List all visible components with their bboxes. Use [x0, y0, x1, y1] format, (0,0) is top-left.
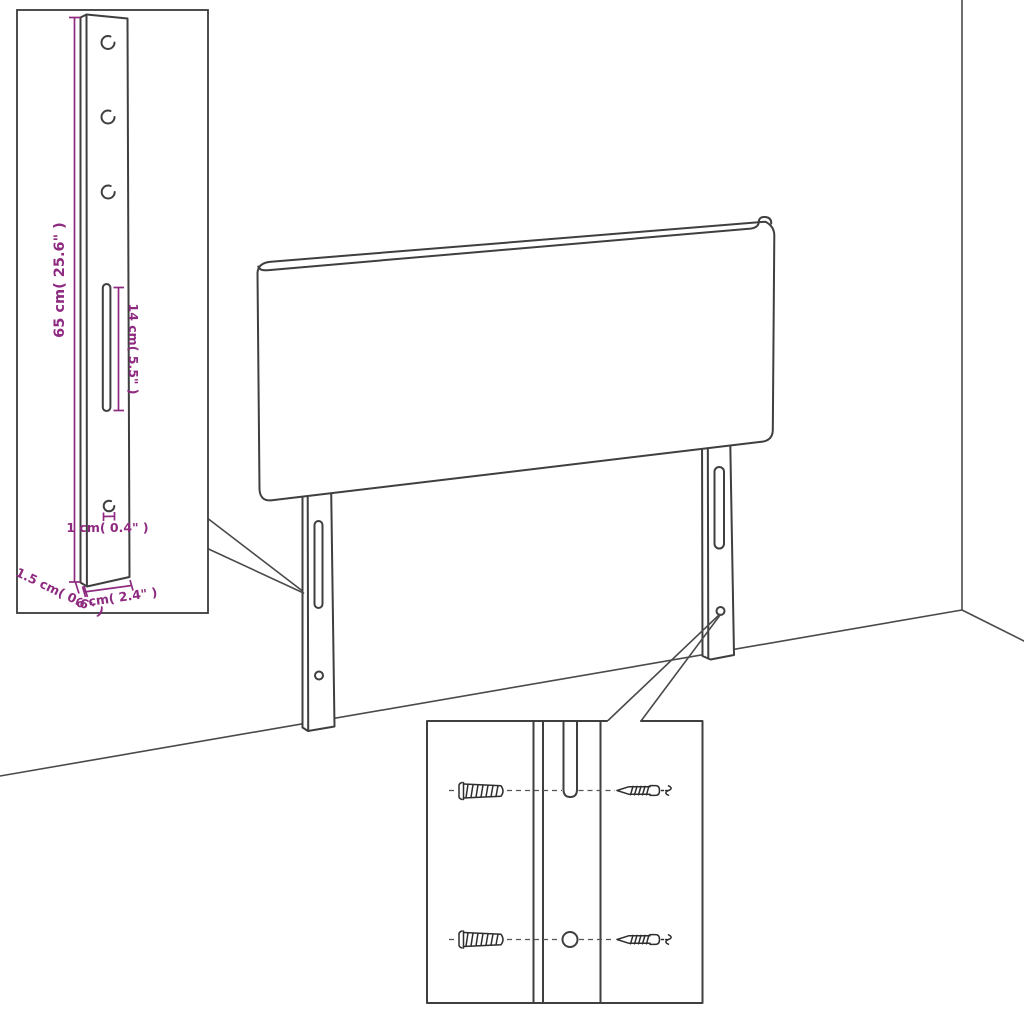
dim-hole-label: 1 cm( 0.4" ): [66, 520, 148, 535]
hole-callout-leader-right: [641, 615, 721, 722]
right-leg-body: [702, 428, 734, 660]
left-leg: [303, 478, 335, 731]
leader-lines: [209, 519, 721, 721]
inset-leg-detail: 65 cm( 25.6" ) 14 cm( 5.5" ) 1 cm( 0.4" …: [14, 10, 208, 619]
left-leg-edge-line: [308, 479, 309, 731]
headboard-panel: [258, 217, 775, 500]
diagram-page: 65 cm( 25.6" ) 14 cm( 5.5" ) 1 cm( 0.4" …: [0, 0, 1024, 1024]
right-leg: [702, 428, 734, 660]
dim-height-label: 65 cm( 25.6" ): [52, 222, 68, 338]
inset-mounting-detail: [427, 721, 703, 1003]
floor-line-right: [962, 610, 1024, 641]
dim-slot-label: 14 cm( 5.5" ): [126, 304, 141, 395]
inset-mounting-box-fill: [427, 721, 703, 1003]
diagram-canvas: 65 cm( 25.6" ) 14 cm( 5.5" ) 1 cm( 0.4" …: [0, 0, 1024, 1024]
